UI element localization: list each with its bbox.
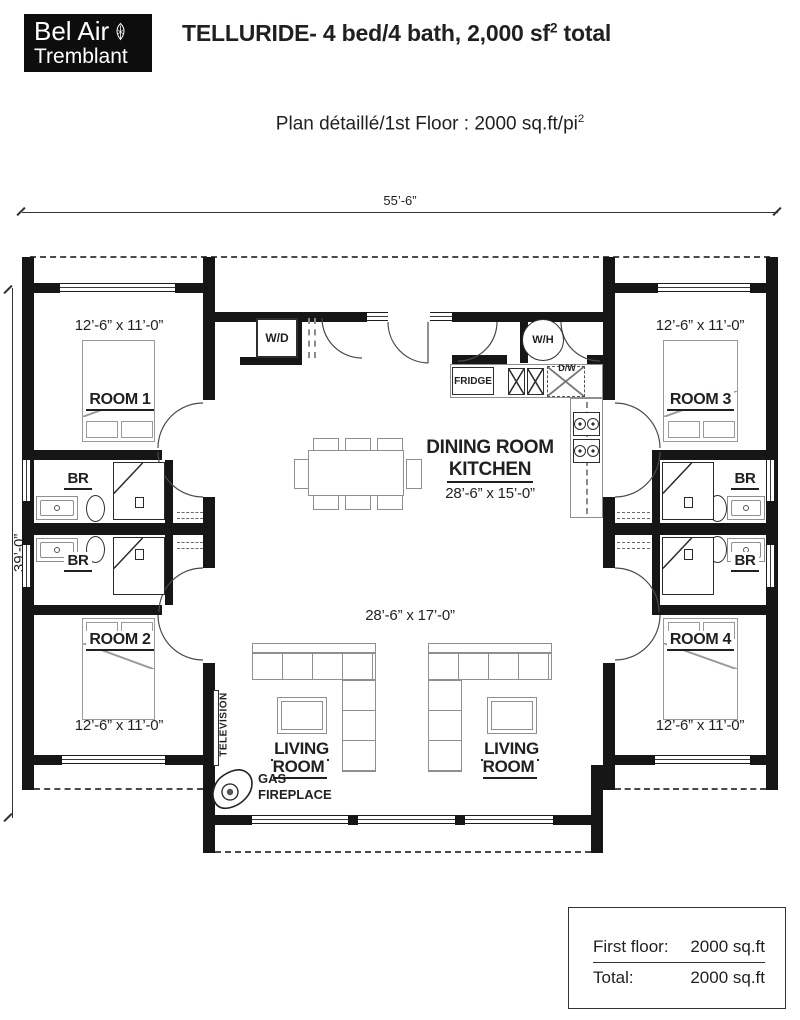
bed-pillow bbox=[703, 421, 735, 438]
closet-rod bbox=[308, 318, 310, 358]
dining-chair bbox=[377, 494, 403, 510]
bathroom-label: BR bbox=[56, 553, 100, 569]
closet-rod bbox=[617, 512, 650, 513]
deck-outline bbox=[215, 851, 591, 853]
window bbox=[60, 283, 175, 292]
sofa-back bbox=[252, 643, 376, 653]
dining-table bbox=[308, 450, 404, 496]
coffee-table bbox=[277, 697, 327, 734]
window bbox=[766, 545, 775, 587]
dimension-tick bbox=[772, 207, 781, 216]
dishwasher-label: D/W bbox=[549, 364, 585, 373]
window bbox=[655, 755, 750, 764]
table-row: First floor: 2000 sq.ft bbox=[593, 932, 765, 962]
window bbox=[465, 815, 560, 824]
wall bbox=[203, 283, 215, 400]
wall bbox=[348, 815, 358, 825]
entry-door-arc bbox=[388, 322, 428, 363]
closet-rod bbox=[177, 542, 203, 543]
logo-line1: Bel Air bbox=[34, 18, 109, 44]
summary-row-value: 2000 sq.ft bbox=[690, 937, 765, 957]
closet-rod bbox=[177, 548, 203, 549]
overall-width-dimension: 55’-6” bbox=[0, 194, 800, 208]
room1-dimensions: 12’-6” x 11’-0” bbox=[35, 318, 203, 334]
wall bbox=[22, 450, 162, 460]
brand-logo: Bel Air Tremblant bbox=[24, 14, 152, 72]
shower bbox=[662, 462, 714, 520]
roof-overhang-line bbox=[30, 256, 770, 258]
wall bbox=[165, 755, 215, 765]
wall bbox=[240, 357, 302, 365]
closet-rod bbox=[617, 548, 650, 549]
bathroom-label: BR bbox=[723, 553, 767, 569]
shower bbox=[113, 537, 165, 595]
washer-dryer: W/D bbox=[256, 318, 298, 358]
roof-overhang-line bbox=[615, 788, 766, 790]
window bbox=[430, 312, 452, 321]
dining-kitchen-dimensions: 28’-6” x 15’-0” bbox=[398, 486, 582, 502]
closet-rod bbox=[314, 318, 316, 358]
kitchen-sink bbox=[508, 368, 525, 395]
bathroom-sink bbox=[36, 496, 78, 520]
dimension-line-top bbox=[22, 212, 778, 213]
wall bbox=[603, 523, 778, 535]
closet-door-arc bbox=[322, 318, 362, 358]
kitchen-label: KITCHEN bbox=[398, 460, 582, 480]
window bbox=[658, 283, 750, 292]
wall bbox=[603, 283, 615, 400]
dining-chair bbox=[313, 494, 339, 510]
table-row: Total: 2000 sq.ft bbox=[593, 963, 765, 993]
wall bbox=[652, 460, 660, 523]
leaf-icon bbox=[114, 22, 127, 41]
title-suffix: total bbox=[557, 20, 611, 46]
room1-label: ROOM 1 bbox=[80, 392, 160, 409]
area-summary-table: First floor: 2000 sq.ft Total: 2000 sq.f… bbox=[568, 907, 786, 1009]
wall bbox=[587, 355, 603, 364]
summary-row-label: First floor: bbox=[593, 937, 669, 957]
wall bbox=[165, 460, 173, 523]
wall bbox=[603, 663, 615, 790]
roof-overhang-line bbox=[34, 788, 203, 790]
fireplace-label: FIREPLACE bbox=[258, 788, 348, 802]
wall bbox=[591, 765, 603, 853]
closet-rod bbox=[177, 518, 203, 519]
wall bbox=[553, 815, 603, 825]
wall bbox=[603, 755, 655, 765]
shower bbox=[662, 537, 714, 595]
living-room-dimensions: 28’-6” x 17’-0” bbox=[318, 608, 502, 624]
sofa-seat bbox=[428, 653, 552, 680]
subtitle-text: Plan détaillé/1st Floor : 2000 sq.ft/pi bbox=[276, 113, 578, 134]
wall bbox=[22, 283, 34, 790]
room3-dimensions: 12’-6” x 11’-0” bbox=[616, 318, 784, 334]
closet-rod bbox=[617, 542, 650, 543]
wall bbox=[452, 355, 507, 364]
television-label: TELEVISION bbox=[220, 681, 233, 769]
sofa-seat bbox=[252, 653, 376, 680]
refrigerator: FRIDGE bbox=[452, 367, 494, 395]
wall bbox=[455, 815, 465, 825]
wall bbox=[203, 815, 252, 825]
bathroom-label: BR bbox=[723, 471, 767, 487]
dining-room-label: DINING ROOM bbox=[398, 438, 582, 458]
wall bbox=[22, 523, 215, 535]
stove-burners bbox=[573, 412, 600, 436]
window bbox=[252, 815, 348, 824]
closet-rod bbox=[617, 518, 650, 519]
window bbox=[22, 459, 31, 501]
living-room-label: LIVING ROOM bbox=[455, 740, 565, 776]
window bbox=[62, 755, 165, 764]
logo-line2: Tremblant bbox=[34, 46, 142, 67]
bed-pillow bbox=[668, 421, 700, 438]
window bbox=[367, 312, 388, 321]
room2-dimensions: 12’-6” x 11’-0” bbox=[35, 718, 203, 734]
page-title: TELLURIDE- 4 bed/4 bath, 2,000 sf2 total bbox=[182, 20, 611, 47]
summary-row-label: Total: bbox=[593, 968, 634, 988]
title-text: TELLURIDE- 4 bed/4 bath, 2,000 sf bbox=[182, 20, 550, 46]
room4-label: ROOM 4 bbox=[658, 632, 743, 649]
closet-rod bbox=[177, 512, 203, 513]
wall bbox=[766, 755, 778, 790]
room4-dimensions: 12’-6” x 11’-0” bbox=[616, 718, 784, 734]
window bbox=[766, 459, 775, 501]
window bbox=[22, 545, 31, 587]
sofa-back bbox=[428, 643, 552, 653]
room3-label: ROOM 3 bbox=[658, 392, 743, 409]
toilet bbox=[86, 495, 105, 522]
room2-label: ROOM 2 bbox=[80, 632, 160, 649]
door-arc bbox=[615, 403, 660, 448]
bathroom-label: BR bbox=[56, 471, 100, 487]
wall bbox=[165, 535, 173, 605]
bathroom-sink bbox=[727, 496, 765, 520]
floor-plan-page: Bel Air Tremblant TELLURIDE- 4 bed/4 bat… bbox=[0, 0, 800, 1020]
dining-chair bbox=[345, 494, 371, 510]
wall bbox=[652, 450, 778, 460]
wall bbox=[766, 283, 778, 790]
door-arc bbox=[615, 615, 660, 660]
window bbox=[358, 815, 455, 824]
wall bbox=[22, 605, 162, 615]
dining-chair bbox=[406, 459, 422, 489]
wall bbox=[652, 535, 660, 605]
coffee-table bbox=[487, 697, 537, 734]
door-arc bbox=[158, 615, 203, 660]
wall bbox=[203, 765, 215, 853]
wall bbox=[22, 755, 34, 790]
kitchen-sink bbox=[527, 368, 544, 395]
door-arc bbox=[158, 403, 203, 448]
bed-pillow bbox=[86, 421, 118, 438]
bed-pillow bbox=[121, 421, 153, 438]
subtitle-superscript: 2 bbox=[578, 113, 584, 125]
water-heater: W/H bbox=[522, 319, 564, 361]
wall bbox=[652, 605, 778, 615]
fireplace-label: GAS bbox=[258, 772, 338, 786]
summary-row-value: 2000 sq.ft bbox=[690, 968, 765, 988]
plan-subtitle: Plan détaillé/1st Floor : 2000 sq.ft/pi2 bbox=[60, 113, 800, 135]
shower bbox=[113, 462, 165, 520]
